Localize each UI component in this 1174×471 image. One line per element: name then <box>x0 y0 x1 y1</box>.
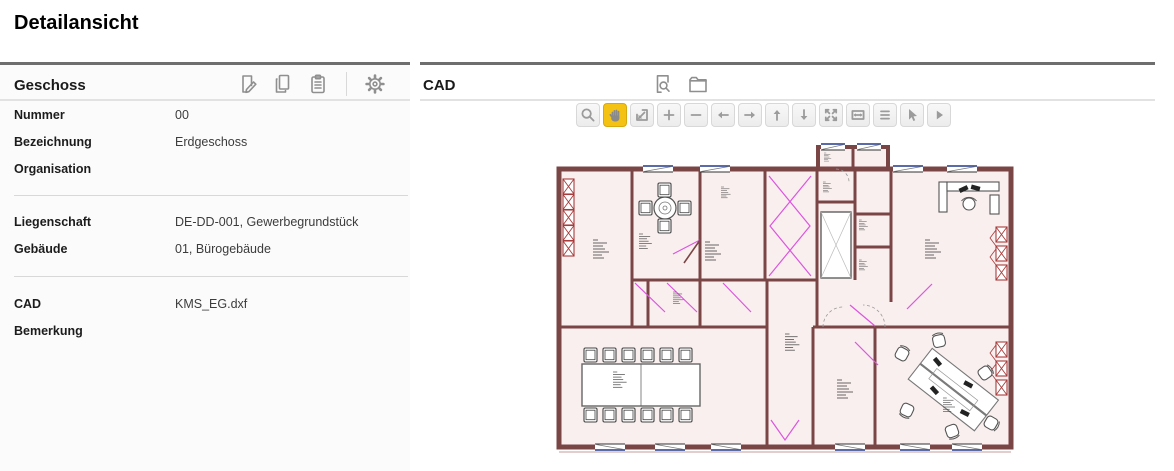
edit-button[interactable] <box>235 71 261 97</box>
tool-select-button[interactable] <box>900 103 924 127</box>
cad-panel: CAD <box>420 62 1155 471</box>
field-value: KMS_EG.dxf <box>175 297 247 311</box>
tool-pan-down-button[interactable] <box>792 103 816 127</box>
arrow-down-icon <box>796 107 812 123</box>
tool-zoom-button[interactable] <box>576 103 600 127</box>
section-divider <box>14 276 408 277</box>
field-value: 00 <box>175 108 189 122</box>
field-label: Nummer <box>14 108 164 122</box>
page-title: Detailansicht <box>14 12 138 35</box>
tool-pan-button[interactable] <box>603 103 627 127</box>
plus-icon <box>661 107 677 123</box>
settings-button[interactable] <box>362 71 388 97</box>
geschoss-panel: Geschoss <box>0 62 410 471</box>
cad-open-folder-button[interactable] <box>685 71 711 97</box>
field-label: CAD <box>14 297 164 311</box>
arrow-up-icon <box>769 107 785 123</box>
copy-button[interactable] <box>270 71 296 97</box>
tool-pan-left-button[interactable] <box>711 103 735 127</box>
copy-icon <box>272 73 294 95</box>
cad-header-divider <box>420 99 1155 101</box>
magnifier-icon <box>580 107 596 123</box>
tool-zoom-window-button[interactable] <box>630 103 654 127</box>
play-icon <box>931 107 947 123</box>
fit-width-icon <box>850 107 866 123</box>
document-search-icon <box>652 73 674 95</box>
tool-layers-button[interactable] <box>873 103 897 127</box>
toolbar-separator <box>346 72 347 96</box>
hand-icon <box>607 107 623 123</box>
zoom-window-icon <box>634 107 650 123</box>
section-divider <box>14 195 408 196</box>
tool-pan-up-button[interactable] <box>765 103 789 127</box>
arrow-left-icon <box>715 107 731 123</box>
tool-fit-width-button[interactable] <box>846 103 870 127</box>
clipboard-icon <box>307 73 329 95</box>
clipboard-button[interactable] <box>305 71 331 97</box>
field-value: 01, Bürogebäude <box>175 242 271 256</box>
tool-zoom-in-button[interactable] <box>657 103 681 127</box>
expand-icon <box>823 107 839 123</box>
tool-fit-view-button[interactable] <box>819 103 843 127</box>
pointer-icon <box>904 107 920 123</box>
cad-panel-title: CAD <box>423 77 456 94</box>
field-label: Bemerkung <box>14 324 164 338</box>
geschoss-header-divider <box>0 99 410 101</box>
tool-more-button[interactable] <box>927 103 951 127</box>
arrow-right-icon <box>742 107 758 123</box>
field-label: Organisation <box>14 162 164 176</box>
field-value: Erdgeschoss <box>175 135 247 149</box>
cad-viewer-toolbar <box>576 103 951 127</box>
gear-icon <box>364 73 386 95</box>
geschoss-panel-title: Geschoss <box>14 77 86 94</box>
field-label: Liegenschaft <box>14 215 164 229</box>
folder-icon <box>687 73 709 95</box>
field-label: Bezeichnung <box>14 135 164 149</box>
list-icon <box>877 107 893 123</box>
tool-zoom-out-button[interactable] <box>684 103 708 127</box>
edit-document-icon <box>237 73 259 95</box>
tool-pan-right-button[interactable] <box>738 103 762 127</box>
cad-preview-button[interactable] <box>650 71 676 97</box>
minus-icon <box>688 107 704 123</box>
field-label: Gebäude <box>14 242 164 256</box>
field-value: DE-DD-001, Gewerbegrundstück <box>175 215 358 229</box>
elevator-shaft <box>821 212 851 278</box>
cad-floor-plan-canvas[interactable] <box>555 142 1017 462</box>
